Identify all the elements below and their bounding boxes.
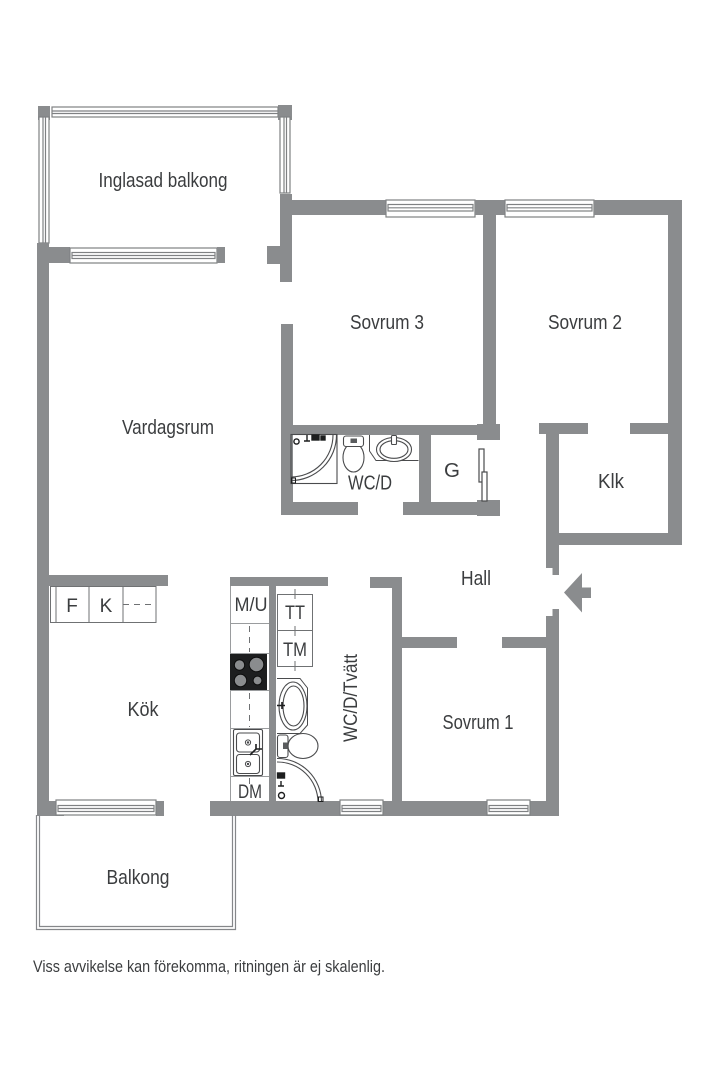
svg-text:F: F xyxy=(66,596,78,617)
svg-text:Sovrum 1: Sovrum 1 xyxy=(443,711,514,734)
svg-text:Balkong: Balkong xyxy=(107,866,170,889)
svg-text:Inglasad balkong: Inglasad balkong xyxy=(99,169,228,192)
svg-text:TM: TM xyxy=(283,640,307,661)
svg-text:Hall: Hall xyxy=(461,567,491,590)
svg-text:Kök: Kök xyxy=(128,698,160,721)
svg-text:DM: DM xyxy=(238,782,262,803)
svg-text:G: G xyxy=(444,459,460,482)
svg-text:Klk: Klk xyxy=(598,470,625,493)
svg-text:TT: TT xyxy=(285,603,305,624)
svg-text:Viss avvikelse kan förekomma,: Viss avvikelse kan förekomma, ritningen … xyxy=(33,958,385,976)
svg-text:Vardagsrum: Vardagsrum xyxy=(122,416,214,439)
svg-text:WC/D: WC/D xyxy=(348,472,392,495)
svg-text:Sovrum 3: Sovrum 3 xyxy=(350,311,424,334)
svg-text:K: K xyxy=(100,596,113,617)
svg-text:Sovrum 2: Sovrum 2 xyxy=(548,311,622,334)
svg-text:WC/D/Tvätt: WC/D/Tvätt xyxy=(341,653,362,742)
svg-text:M/U: M/U xyxy=(235,595,268,616)
